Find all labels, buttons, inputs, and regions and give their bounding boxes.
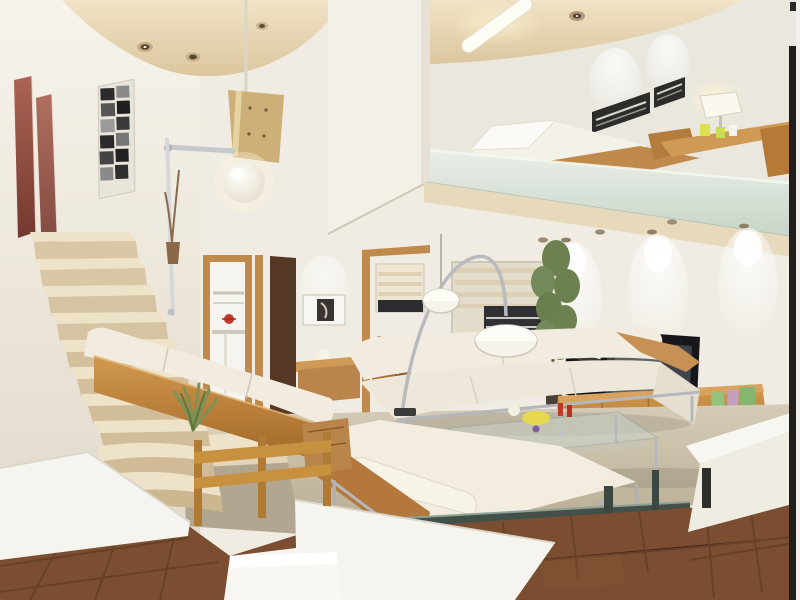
- balustrade-post: [652, 470, 659, 510]
- red-glass: [558, 403, 563, 416]
- vase: [166, 242, 180, 264]
- interior-render: [0, 0, 800, 600]
- door-frame: [255, 255, 263, 428]
- wall-niche-art: [303, 295, 345, 325]
- stair-step: [51, 312, 166, 324]
- downlight-icon: [538, 237, 548, 242]
- dining-window-blinds: [376, 264, 424, 312]
- stair-step: [30, 232, 136, 242]
- red-glass: [567, 405, 572, 417]
- kitchen-counter: [212, 330, 245, 334]
- interior-scene: [0, 0, 800, 600]
- stair-step: [36, 258, 145, 270]
- white-flowers: [508, 404, 520, 416]
- door-frame: [362, 250, 370, 428]
- lamp-base: [394, 408, 416, 416]
- wall-slot: [702, 468, 711, 508]
- image-edge-strip: [789, 0, 800, 600]
- stair-step: [43, 285, 155, 297]
- white-cup: [729, 125, 737, 136]
- downlight-icon: [595, 229, 605, 234]
- downlight-icon: [667, 219, 677, 224]
- yellow-bowl: [522, 411, 550, 425]
- bw-photo-collage: [95, 79, 138, 198]
- globe: [223, 161, 265, 203]
- purple-accent: [533, 426, 540, 433]
- green-cup: [716, 127, 725, 138]
- green-cup: [700, 124, 710, 136]
